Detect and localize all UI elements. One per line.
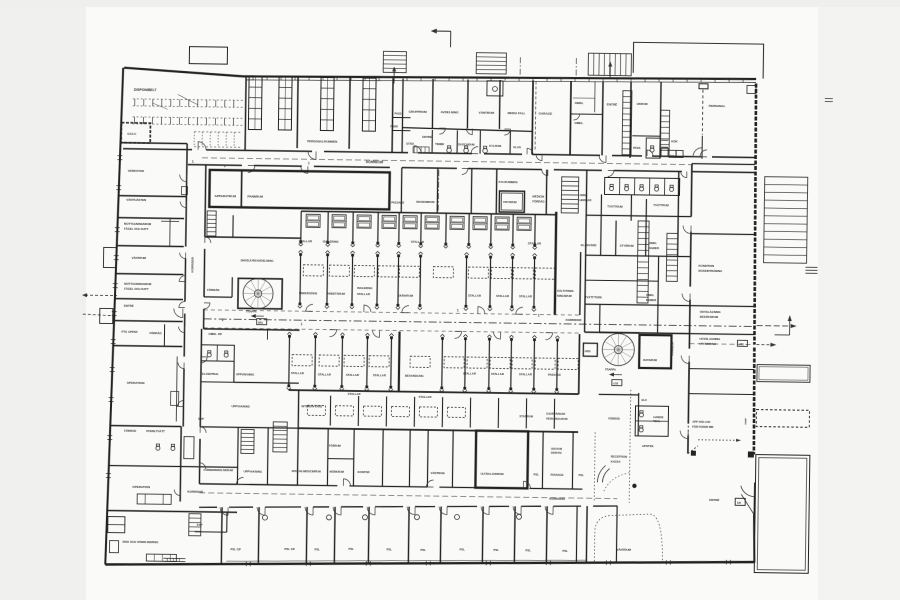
svg-text:DRÄKTIG: DRÄKTIG (551, 452, 562, 455)
svg-text:SMÅDJURSAVDELNING: SMÅDJURSAVDELNING (241, 257, 275, 262)
svg-text:TOAL: TOAL (653, 419, 660, 423)
svg-text:TRAPPA: TRAPPA (246, 309, 257, 313)
svg-text:TRAPPA: TRAPPA (605, 367, 616, 371)
svg-text:ENTRÉ: ENTRÉ (422, 134, 432, 139)
svg-text:DISK OCH STERILISERING: DISK OCH STERILISERING (123, 540, 159, 545)
svg-text:KORRIDOR: KORRIDOR (549, 497, 566, 501)
svg-text:OMKL OP: OMKL OP (208, 332, 222, 336)
svg-text:STALLAR: STALLAR (496, 294, 509, 298)
svg-text:PERSONALRUM: PERSONALRUM (546, 417, 568, 421)
svg-text:ELCENTRAL: ELCENTRAL (202, 372, 219, 376)
svg-text:PSL: PSL (579, 473, 585, 477)
svg-text:PSL: PSL (348, 547, 354, 551)
svg-text:HOVSLAGNING: HOVSLAGNING (699, 337, 720, 341)
svg-text:KORRIDOR: KORRIDOR (566, 318, 583, 322)
svg-text:HOVSLAGNING: HOVSLAGNING (700, 310, 721, 314)
svg-text:STÄD: STÄD (406, 142, 414, 146)
svg-text:PSL: PSL (459, 547, 465, 551)
svg-text:VERKSTAD: VERKSTAD (128, 169, 145, 173)
svg-text:ISOLERING: ISOLERING (357, 286, 372, 290)
svg-text:KORRIDOR: KORRIDOR (190, 256, 194, 273)
svg-text:1: 1 (308, 161, 310, 165)
svg-text:ENTRÉ: ENTRÉ (709, 497, 719, 502)
svg-text:STERILTVÄTT: STERILTVÄTT (146, 429, 165, 433)
svg-text:OMKL: OMKL (575, 101, 584, 105)
svg-text:1: 1 (192, 160, 194, 164)
svg-text:SPECIALMEDICINRUM: SPECIALMEDICINRUM (292, 469, 322, 473)
svg-text:PSL: PSL (525, 548, 531, 552)
svg-text:VÄNTRUM: VÄNTRUM (617, 548, 632, 552)
svg-text:MEDIA FALL: MEDIA FALL (508, 111, 526, 115)
svg-text:ENTRÉ: ENTRÉ (607, 101, 618, 106)
svg-text:PSL: PSL (420, 548, 426, 552)
svg-text:STÄDRUM: STÄDRUM (519, 414, 533, 418)
svg-text:TVÄTTRUM: TVÄTTRUM (607, 204, 623, 208)
svg-text:FÖRRÅD: FÖRRÅD (149, 330, 161, 335)
svg-text:HKRUM: HKRUM (637, 102, 648, 106)
svg-text:NINGSRUM: NINGSRUM (557, 294, 572, 298)
svg-text:OMKL: OMKL (649, 241, 658, 245)
svg-text:UTR: UTR (613, 382, 618, 385)
svg-text:K K: K K (670, 155, 674, 158)
svg-text:STALLAR: STALLAR (357, 292, 370, 296)
svg-text:PSL OP: PSL OP (230, 547, 240, 551)
svg-text:VÄNTRUM: VÄNTRUM (132, 256, 147, 260)
svg-text:VÄNTRUM: VÄNTRUM (431, 471, 446, 475)
svg-text:AVDELNING: AVDELNING (441, 110, 460, 114)
svg-text:KYLRUM: KYLRUM (489, 144, 502, 148)
svg-text:FÖRBEREDELSERUM: FÖRBEREDELSERUM (204, 467, 234, 472)
svg-text:PERSONAL: PERSONAL (709, 104, 726, 108)
svg-text:PSL: PSL (562, 549, 568, 553)
svg-text:PASSAGE: PASSAGE (391, 200, 404, 204)
svg-text:FÖRRÅD: FÖRRÅD (532, 198, 544, 203)
svg-text:PSL: PSL (386, 547, 392, 551)
svg-text:PERSONALRUMMEN: PERSONALRUMMEN (307, 139, 337, 143)
svg-text:EXP: EXP (197, 523, 203, 527)
svg-text:MASKINRUM: MASKINRUM (416, 200, 435, 204)
svg-text:1: 1 (301, 322, 303, 326)
svg-text:STALLAR: STALLAR (291, 371, 304, 375)
svg-text:VÄNTRUM: VÄNTRUM (479, 111, 495, 115)
svg-text:1: 1 (222, 318, 224, 322)
svg-text:BR1: BR1 (258, 321, 263, 324)
svg-text:BEHANDLING: BEHANDLING (405, 374, 424, 378)
svg-text:VÄNTHÄSTEN: VÄNTHÄSTEN (126, 198, 146, 202)
svg-text:DATARUM: DATARUM (643, 358, 657, 362)
svg-text:STALLAR: STALLAR (299, 239, 313, 243)
svg-text:RAMP: RAMP (744, 417, 747, 424)
svg-text:UNDERSÖKN: UNDERSÖKN (299, 290, 317, 295)
svg-text:OPERATION: OPERATION (127, 381, 145, 385)
svg-text:OMKL: OMKL (646, 293, 655, 297)
svg-text:FRYSRUM: FRYSRUM (503, 200, 517, 204)
svg-text:FÖR FODER MM: FÖR FODER MM (692, 425, 714, 429)
svg-text:FÅGEL OCH KATT: FÅGEL OCH KATT (124, 226, 149, 231)
svg-text:1: 1 (281, 306, 283, 310)
svg-text:FÖRRUM: FÖRRUM (329, 444, 342, 448)
svg-text:MOTTAGNINGSRUM: MOTTAGNINGSRUM (124, 222, 152, 226)
svg-text:OMKL: OMKL (574, 121, 583, 125)
svg-text:UPPVAKNING: UPPVAKNING (236, 372, 255, 376)
svg-text:GRUPPRUM: GRUPPRUM (409, 110, 428, 114)
svg-text:KYLRUMMEN: KYLRUMMEN (499, 180, 518, 184)
svg-text:PASSAGE: PASSAGE (548, 373, 561, 377)
svg-text:1: 1 (538, 314, 540, 318)
svg-text:TVÄTTRUM: TVÄTTRUM (653, 203, 669, 207)
svg-text:STALLAR: STALLAR (411, 240, 425, 244)
svg-text:MOTTAGNINGSRUM: MOTTAGNINGSRUM (124, 282, 152, 286)
svg-text:ENTRÉ: ENTRÉ (124, 303, 134, 308)
svg-text:STALLAR: STALLAR (491, 372, 504, 376)
svg-text:STALLAR: STALLAR (519, 294, 532, 298)
svg-text:KORRIDOR: KORRIDOR (671, 342, 674, 356)
svg-text:PSL OP: PSL OP (284, 547, 294, 551)
svg-text:STALLAR: STALLAR (468, 294, 481, 298)
svg-text:KORRIDOR: KORRIDOR (366, 160, 384, 164)
svg-text:PSL: PSL (314, 547, 320, 551)
svg-text:ISOLERING: ISOLERING (323, 239, 340, 243)
svg-text:DISPONIBELT: DISPONIBELT (134, 88, 158, 92)
svg-text:HISS: HISS (585, 350, 591, 353)
svg-text:STALLAR: STALLAR (348, 392, 361, 396)
svg-text:DAMER: DAMER (646, 298, 656, 302)
svg-text:MASKINTRÄNING: MASKINTRÄNING (698, 269, 722, 273)
svg-text:PASS: PASS (395, 111, 402, 115)
svg-text:OPERATION: OPERATION (132, 485, 150, 489)
svg-text:MÖRKRUM: MÖRKRUM (330, 470, 345, 474)
svg-text:STALLAR: STALLAR (318, 372, 331, 376)
svg-text:ARBETSRUM: ARBETSRUM (327, 292, 346, 296)
svg-text:PTG APPAR: PTG APPAR (121, 330, 137, 334)
svg-text:GARAGE: GARAGE (539, 111, 553, 115)
svg-text:APP AVD.LOK: APP AVD.LOK (692, 420, 710, 424)
svg-text:STALLAR: STALLAR (419, 395, 432, 399)
svg-text:KORRIDOR: KORRIDOR (187, 490, 204, 494)
svg-text:KASSA: KASSA (611, 460, 621, 464)
svg-text:EXP: EXP (198, 417, 204, 421)
svg-text:UPPVAKNING: UPPVAKNING (231, 404, 250, 408)
svg-text:FÅGEL OCH KATT: FÅGEL OCH KATT (124, 286, 149, 291)
svg-text:ULTRALJUDRUM: ULTRALJUDRUM (481, 472, 505, 476)
svg-text:GAS-C: GAS-C (127, 132, 136, 136)
svg-text:SKRIVRUM: SKRIVRUM (398, 294, 414, 298)
svg-text:UPPVAKNING: UPPVAKNING (244, 469, 263, 473)
svg-text:HERRAR: HERRAR (579, 198, 591, 202)
svg-text:BESÖKSRUM: BESÖKSRUM (700, 314, 719, 319)
svg-text:STALLAR: STALLAR (528, 241, 542, 245)
svg-text:PSL: PSL (493, 548, 499, 552)
svg-text:PANNRUM: PANNRUM (247, 194, 263, 198)
svg-text:AVD RUM: AVD RUM (551, 448, 562, 451)
svg-text:TVÄTT/TORK: TVÄTT/TORK (585, 295, 602, 299)
svg-text:ELC: ELC (642, 398, 647, 402)
svg-text:DAMER: DAMER (649, 246, 659, 250)
svg-text:STALLAR: STALLAR (373, 373, 386, 377)
svg-text:1: 1 (224, 164, 226, 168)
svg-text:FÖRRÅD: FÖRRÅD (124, 428, 136, 433)
svg-text:ER: ER (737, 501, 741, 505)
svg-text:KONDITION: KONDITION (698, 264, 714, 268)
svg-text:GLAS: GLAS (513, 145, 521, 149)
svg-text:RECEPTION: RECEPTION (611, 455, 627, 459)
svg-text:KÖK: KÖK (671, 139, 678, 143)
svg-text:HÄLTUTRED-: HÄLTUTRED- (557, 289, 574, 293)
svg-text:STALLAR: STALLAR (519, 372, 532, 376)
svg-text:INTENSIVVÅRD: INTENSIVVÅRD (301, 403, 322, 408)
svg-text:UTG: UTG (739, 343, 744, 346)
svg-text:STALLAR: STALLAR (463, 371, 476, 375)
svg-text:PSL: PSL (534, 472, 540, 476)
svg-text:PASSAGE: PASSAGE (551, 473, 564, 477)
svg-text:MEDICIN: MEDICIN (532, 194, 544, 198)
svg-text:APOTEK: APOTEK (642, 444, 654, 448)
svg-text:HANDIK: HANDIK (653, 415, 663, 419)
svg-text:TIMME: TIMME (435, 142, 444, 146)
svg-text:1: 1 (457, 308, 459, 312)
svg-text:STALLAR: STALLAR (346, 373, 359, 377)
svg-text:FÖRRÅD: FÖRRÅD (207, 287, 219, 292)
svg-text:PASS: PASS (633, 146, 641, 150)
svg-text:STYRRUM: STYRRUM (620, 244, 635, 248)
svg-text:KLÄDVÅRD: KLÄDVÅRD (581, 242, 597, 247)
svg-text:KONTOR: KONTOR (358, 470, 370, 474)
svg-text:APPARATRUM: APPARATRUM (214, 194, 236, 198)
